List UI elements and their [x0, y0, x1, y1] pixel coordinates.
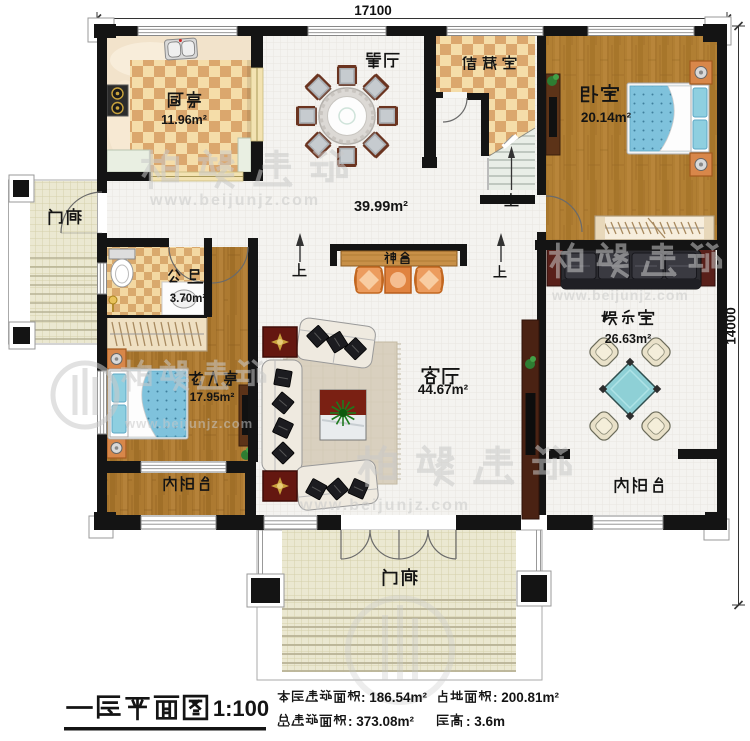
svg-text:39.99m²: 39.99m² [354, 199, 408, 215]
svg-text:3.70m²: 3.70m² [170, 293, 207, 305]
svg-text:26.63m²: 26.63m² [605, 332, 652, 346]
svg-text:www.beijunjz.com: www.beijunjz.com [299, 497, 470, 514]
svg-text:www.beijunjz.com: www.beijunjz.com [551, 287, 689, 303]
svg-text:1:100: 1:100 [213, 696, 269, 721]
svg-text:17.95m²: 17.95m² [190, 390, 235, 404]
svg-text:20.14m²: 20.14m² [581, 110, 632, 125]
svg-text:: 373.08m²: : 373.08m² [348, 714, 415, 729]
svg-text:17100: 17100 [354, 3, 392, 18]
svg-text:www.beijunjz.com: www.beijunjz.com [149, 192, 320, 209]
svg-text:: 186.54m²: : 186.54m² [361, 690, 428, 705]
svg-text:11.96m²: 11.96m² [161, 113, 207, 127]
svg-text:www.beijunjz.com: www.beijunjz.com [124, 416, 253, 431]
svg-text:: 3.6m: : 3.6m [466, 714, 505, 729]
svg-text:44.67m²: 44.67m² [418, 382, 469, 397]
svg-text:: 200.81m²: : 200.81m² [493, 690, 560, 705]
